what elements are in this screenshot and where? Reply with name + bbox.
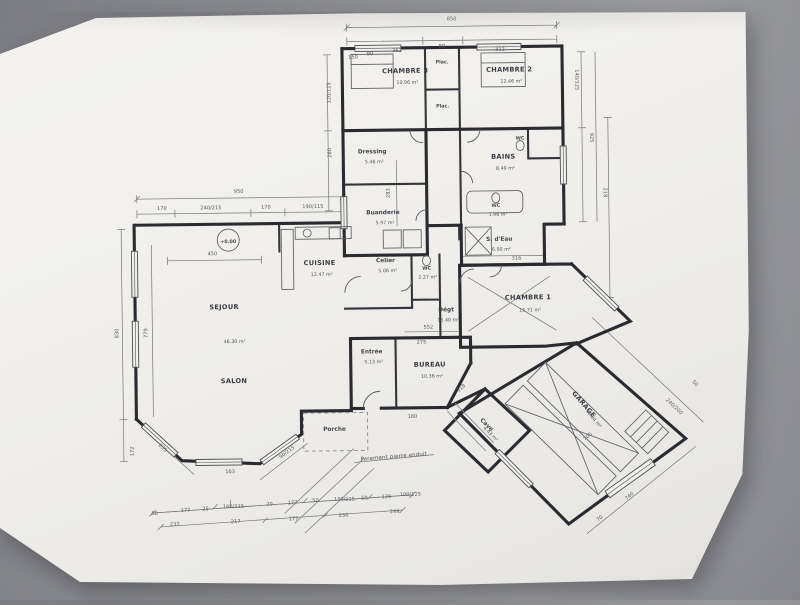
room-area-bureau: 10.36 m² [421, 373, 443, 379]
dimension-label: 177 [288, 500, 298, 506]
room-area-sejour: 46.30 m² [224, 339, 246, 345]
room-area-wc-mid: 1.96 m² [489, 212, 508, 218]
garage-interior [505, 337, 669, 500]
dimension-label: 190/115 [302, 204, 323, 210]
dimension-label: 312 [495, 47, 505, 53]
dimension-label: 25 [202, 506, 209, 512]
room-label-sejour: SEJOUR [209, 303, 239, 311]
room-label-wc-bains: WC [516, 135, 525, 141]
dimension-label: 150 [348, 54, 358, 60]
dimension-label: 180 [408, 414, 418, 420]
dimension-label: 50 [690, 379, 699, 388]
photo-of-floor-plan: { "photo": { "background_color": "#8a8b9… [0, 0, 800, 600]
dimension-label: 240/200 [664, 397, 684, 416]
dimension-label: 170 [261, 205, 271, 211]
dimension-label: 249 [390, 509, 400, 515]
toilet-entree [422, 256, 430, 266]
dimension-label: 318 [456, 383, 467, 394]
dimension-label: 120/125 [326, 82, 332, 103]
room-label-wc-entree: WC [422, 266, 431, 272]
dimension-label: 740 [624, 491, 635, 502]
toilet-bains [516, 140, 524, 150]
room-area-cellier: 5.06 m² [378, 268, 397, 274]
dimension-label: 362 [392, 48, 402, 54]
room-label-placard-1: Plac. [436, 59, 449, 65]
dimension-label: 177 [289, 516, 299, 522]
bathtub [467, 190, 523, 213]
room-label-bains: BAINS [491, 153, 515, 161]
floor-plan: CHAMBRE 310.96 m²CHAMBRE 212.46 m²Plac.P… [0, 0, 800, 605]
dimension-label: 925 [588, 133, 594, 143]
dimension-label: 779 [143, 328, 149, 338]
dimension-label: 172 [130, 446, 136, 456]
kitchen-sink [303, 229, 311, 237]
dimension-label: 50 [361, 495, 368, 501]
room-label-salle-eau: S. d'Eau [486, 237, 512, 243]
room-label-dressing: Dressing [358, 149, 387, 155]
dimension-label: 177 [181, 508, 191, 514]
room-area-dressing: 5.46 m² [365, 159, 384, 165]
dimension-label: 90 [367, 51, 374, 57]
room-area-chambre-1: 15.71 m² [519, 307, 541, 313]
dimension-label: 280 [327, 148, 333, 158]
room-label-degagement: Dégt [438, 306, 454, 313]
dimension-label: 80 [439, 43, 446, 49]
dimension-label: 140/125 [573, 69, 579, 90]
kitchen-stove [329, 228, 340, 239]
room-area-degagement: 15.40 m² [437, 317, 459, 323]
dimension-label: 450 [208, 251, 218, 257]
dimension-label: 237 [170, 522, 180, 528]
room-label-chambre-3: CHAMBRE 3 [382, 67, 428, 76]
room-area-bains: 8.49 m² [496, 166, 515, 172]
room-area-wc-entree: 2.27 m² [418, 275, 437, 281]
room-area-chambre-2: 12.46 m² [500, 78, 522, 84]
room-label-cellier: Celier [376, 258, 395, 264]
laundry-machine [403, 230, 421, 248]
room-area-buanderie: 5.97 m² [376, 220, 395, 226]
dimension-label: 50 [151, 511, 158, 517]
room-label-bureau: BUREAU [414, 360, 446, 368]
room-label-entree: Entrée [361, 348, 383, 355]
room-label-placard-2: Plac. [436, 103, 449, 109]
room-label-porche: Porche [323, 427, 346, 433]
dimension-label: 128 [382, 494, 392, 500]
dimension-label: 50 [312, 498, 319, 504]
toilet-mid [492, 193, 500, 203]
room-area-cuisine: 12.47 m² [311, 272, 333, 278]
dimension-label: 240/215 [200, 205, 221, 211]
dimension-label: 100/125 [400, 492, 421, 498]
dimension-label: 283 [386, 188, 392, 198]
room-label-salon: SALON [221, 377, 248, 385]
dimension-label: 218 [602, 188, 608, 198]
dimension-label: 217 [231, 519, 241, 525]
dimension-label: 316 [512, 256, 522, 262]
room-label-chambre-1: CHAMBRE 1 [505, 293, 551, 302]
interior-partitions [277, 46, 566, 409]
room-label-cuisine: CUISINE [304, 259, 336, 267]
dimension-label: 170 [157, 206, 167, 212]
room-label-chambre-2: CHAMBRE 2 [486, 65, 532, 74]
dimension-label: 160/215 [223, 504, 244, 510]
room-area-chambre-3: 10.96 m² [396, 80, 418, 86]
room-area-salle-eau: 6.90 m² [492, 247, 511, 253]
labels-layer: CHAMBRE 310.96 m²CHAMBRE 212.46 m²Plac.P… [111, 13, 701, 529]
room-area-entree: 5.13 m² [364, 359, 383, 365]
dimension-label: 20 [266, 502, 273, 508]
dimension-label: 830 [114, 329, 120, 339]
room-label-buanderie: Buanderie [366, 210, 400, 216]
facade-note: Parement pierre enduit [360, 451, 427, 462]
dimension-label: 163 [225, 469, 235, 475]
dimension-label: 850 [447, 16, 457, 22]
laundry-machine [383, 230, 401, 248]
dimension-label: 130/215 [334, 497, 355, 503]
dimension-label: 950 [234, 189, 244, 195]
room-label-wc-mid: WC [491, 203, 500, 209]
dimension-label: 275 [417, 340, 427, 346]
dimension-label: 230 [339, 513, 349, 519]
dimension-label: 70 [596, 514, 605, 523]
level-marker-label: +0.00 [220, 239, 237, 245]
dimension-label: 552 [423, 325, 433, 331]
fixtures [215, 51, 669, 504]
kitchen-counter [281, 229, 294, 289]
